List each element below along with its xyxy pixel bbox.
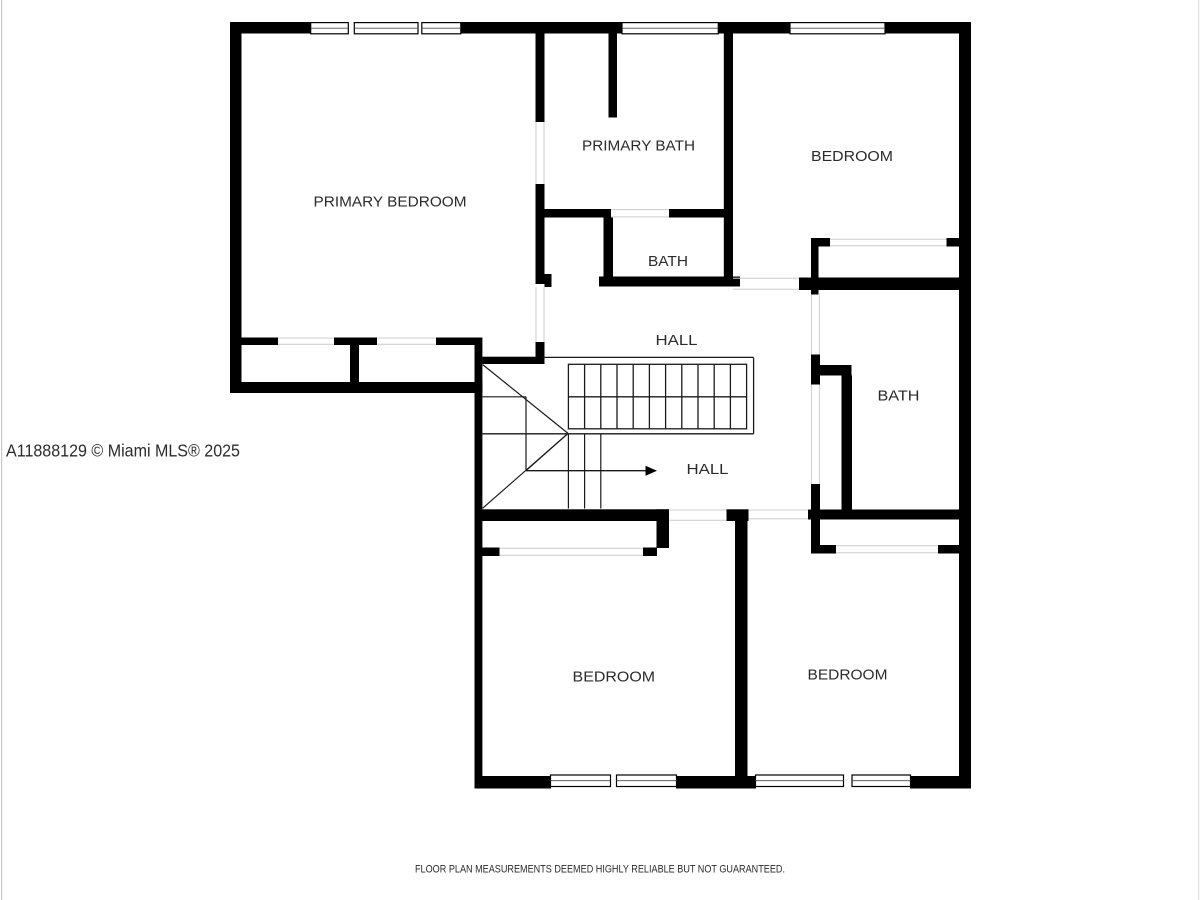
svg-text:HALL: HALL (687, 461, 729, 478)
svg-text:BATH: BATH (878, 387, 920, 404)
svg-text:PRIMARY BATH: PRIMARY BATH (582, 137, 695, 154)
svg-text:BEDROOM: BEDROOM (573, 668, 656, 685)
svg-text:BEDROOM: BEDROOM (808, 666, 888, 683)
svg-text:A11888129 © Miami MLS® 2025: A11888129 © Miami MLS® 2025 (6, 440, 240, 460)
svg-text:BEDROOM: BEDROOM (811, 148, 893, 165)
svg-text:HALL: HALL (656, 332, 698, 349)
svg-text:FLOOR PLAN MEASUREMENTS DEEMED: FLOOR PLAN MEASUREMENTS DEEMED HIGHLY RE… (415, 863, 785, 875)
svg-text:PRIMARY BEDROOM: PRIMARY BEDROOM (314, 193, 467, 210)
svg-text:BATH: BATH (648, 253, 688, 270)
